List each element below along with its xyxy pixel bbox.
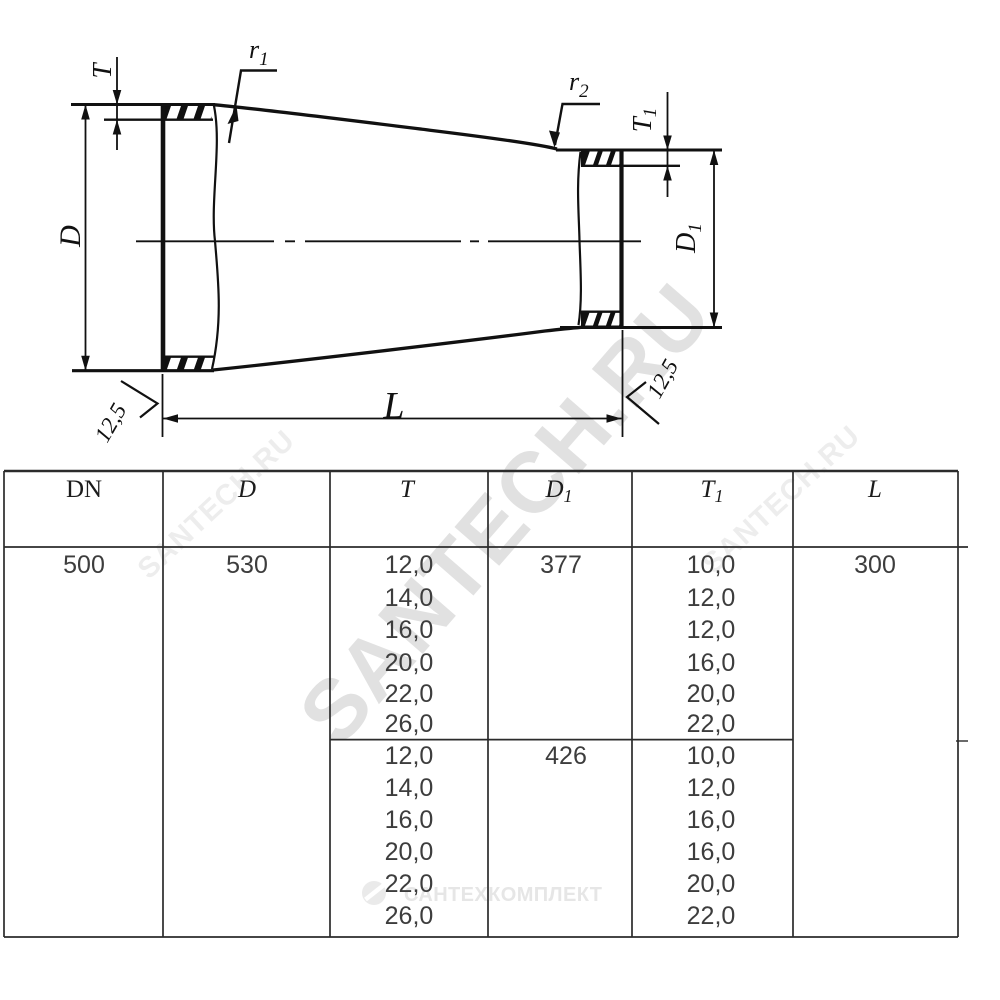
svg-text:10,0: 10,0	[687, 551, 736, 579]
svg-text:10,0: 10,0	[687, 742, 736, 770]
svg-text:T: T	[87, 62, 117, 79]
svg-text:20,0: 20,0	[687, 680, 736, 708]
svg-text:300: 300	[854, 551, 896, 579]
svg-text:12,0: 12,0	[687, 584, 736, 612]
svg-text:L: L	[382, 385, 404, 427]
svg-text:20,0: 20,0	[687, 870, 736, 898]
svg-text:12,0: 12,0	[687, 616, 736, 644]
svg-text:L: L	[867, 476, 882, 503]
svg-text:22,0: 22,0	[385, 680, 434, 708]
svg-text:377: 377	[540, 551, 582, 579]
svg-text:22,0: 22,0	[385, 870, 434, 898]
svg-text:26,0: 26,0	[385, 902, 434, 930]
svg-text:500: 500	[63, 551, 105, 579]
svg-text:T1: T1	[627, 108, 661, 133]
svg-text:14,0: 14,0	[385, 774, 434, 802]
svg-text:16,0: 16,0	[385, 806, 434, 834]
svg-text:D: D	[54, 225, 87, 248]
svg-text:20,0: 20,0	[385, 649, 434, 677]
svg-text:T: T	[400, 476, 416, 503]
svg-text:r1: r1	[249, 35, 269, 70]
svg-text:530: 530	[226, 551, 268, 579]
svg-text:SANTECH.RU: SANTECH.RU	[132, 424, 302, 585]
svg-text:426: 426	[545, 742, 587, 770]
svg-text:16,0: 16,0	[687, 649, 736, 677]
svg-text:12,0: 12,0	[385, 551, 434, 579]
svg-text:26,0: 26,0	[385, 710, 434, 738]
svg-text:DN: DN	[66, 476, 102, 503]
svg-text:12,5: 12,5	[90, 399, 132, 446]
svg-text:20,0: 20,0	[385, 838, 434, 866]
svg-text:22,0: 22,0	[687, 902, 736, 930]
svg-text:16,0: 16,0	[687, 838, 736, 866]
svg-text:D1: D1	[671, 223, 706, 254]
svg-text:12,0: 12,0	[687, 774, 736, 802]
svg-text:22,0: 22,0	[687, 710, 736, 738]
svg-text:14,0: 14,0	[385, 584, 434, 612]
svg-text:SANTECH.RU: SANTECH.RU	[281, 266, 730, 762]
svg-text:T1: T1	[701, 476, 724, 506]
svg-text:12,0: 12,0	[385, 742, 434, 770]
svg-text:16,0: 16,0	[687, 806, 736, 834]
svg-text:r2: r2	[569, 67, 589, 102]
svg-text:D: D	[237, 476, 256, 503]
svg-text:САНТЕХКОМПЛЕКТ: САНТЕХКОМПЛЕКТ	[404, 884, 602, 906]
svg-text:16,0: 16,0	[385, 616, 434, 644]
